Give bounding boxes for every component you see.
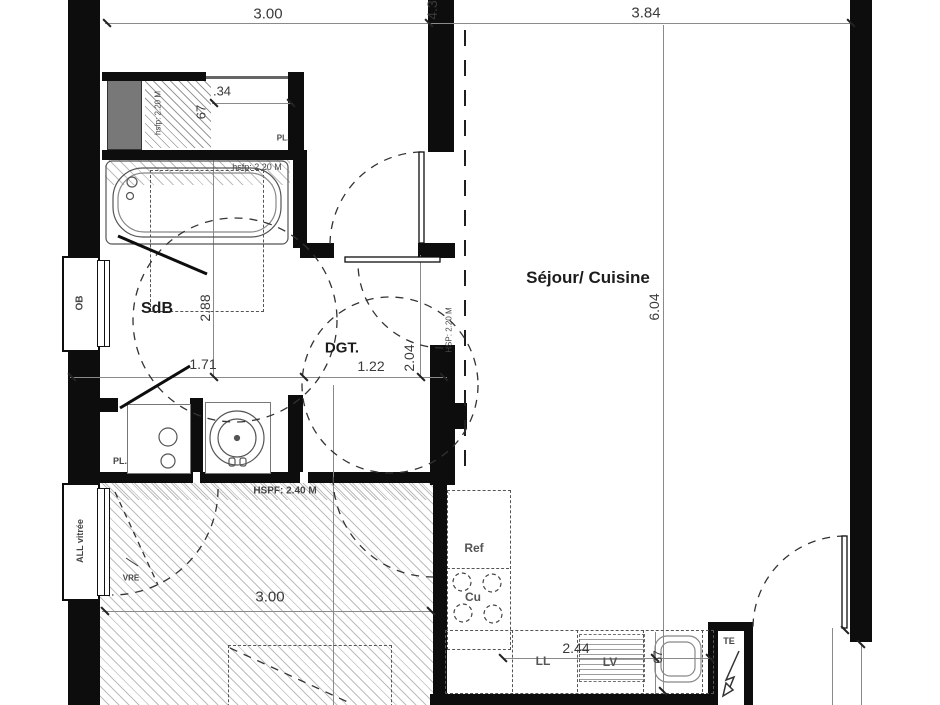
wc-circle-large [159, 428, 177, 446]
burner-1 [453, 573, 471, 591]
door-leaf-sejour [345, 257, 440, 262]
door-arc-vestibule [330, 152, 421, 245]
label-dishwasher: LV [603, 655, 617, 669]
room-label-sejour: Séjour/ Cuisine [526, 268, 650, 288]
label-elec-panel: TE [723, 636, 735, 646]
door-leaf-alcove [120, 366, 190, 408]
bathtub-faucet [127, 177, 137, 187]
dim-dgt-horiz: 1.22 [357, 358, 384, 374]
dim-top-left: 3.00 [253, 6, 282, 23]
label-window-ob: OB [75, 296, 86, 311]
burner-2 [483, 574, 501, 592]
window-leaf-diagonal [115, 492, 158, 585]
dim-sejour-vert: 6.04 [646, 293, 662, 320]
height-closet: hsfp: 2.20 M [154, 91, 163, 135]
dim-top-right: 3.84 [631, 5, 660, 22]
bathtub-rim [113, 168, 281, 237]
label-washing-machine: LL [536, 654, 551, 668]
door-leaf-sdb [118, 236, 207, 274]
room-label-sdb: SdB [141, 300, 173, 318]
basin-drain [235, 436, 240, 441]
bed-diagonal-dashed [230, 648, 352, 704]
dim-dgt-vert: 2.04 [401, 344, 417, 371]
label-shutter: VRE [123, 574, 139, 583]
dim-bottom-room: 3.00 [255, 589, 284, 606]
label-window-all: ALL vitrée [75, 519, 85, 563]
burner-4 [484, 605, 502, 623]
wc-circle-small [161, 454, 175, 468]
dim-sdb-horiz: 1.71 [189, 356, 216, 372]
dim-closet-67: 67 [194, 105, 209, 119]
burner-3 [454, 604, 472, 622]
sink-inner [661, 642, 695, 676]
height-doorway: HSP: 2.20 M [445, 307, 454, 352]
door-leaf-vestibule [419, 152, 424, 243]
bathtub-inner [118, 173, 276, 232]
label-placard-mid: PL. [113, 456, 127, 466]
turning-circle-sdb [133, 218, 337, 422]
dim-sdb-vert: 2.88 [197, 294, 213, 321]
label-cooktop: Cu [465, 590, 481, 604]
door-arc-sejour [358, 263, 443, 348]
height-bottom-zone: HSPF: 2.40 M [253, 486, 316, 497]
label-fridge: Ref [464, 541, 483, 555]
floor-plan: 3.00 3.84 4.3 .34 67 hsfp: 2.20 M PL. hs… [0, 0, 940, 705]
door-arc-bottom-room [333, 477, 433, 577]
dim-top-vert: 4.3 [424, 0, 440, 19]
room-label-dgt: DGT. [325, 340, 359, 357]
dim-closet-34: .34 [213, 84, 231, 99]
dim-kitchen: 2.44 [562, 640, 589, 656]
bathtub-drain [127, 193, 134, 200]
door-arc-entrance [753, 536, 845, 628]
dim-kitchen-67: 67 [651, 650, 665, 663]
label-placard-top: PL. [277, 134, 289, 143]
door-leaf-entrance [842, 536, 847, 628]
shutter-arrow [126, 558, 138, 566]
height-bath: hsfp: 2.20 M [232, 162, 282, 172]
